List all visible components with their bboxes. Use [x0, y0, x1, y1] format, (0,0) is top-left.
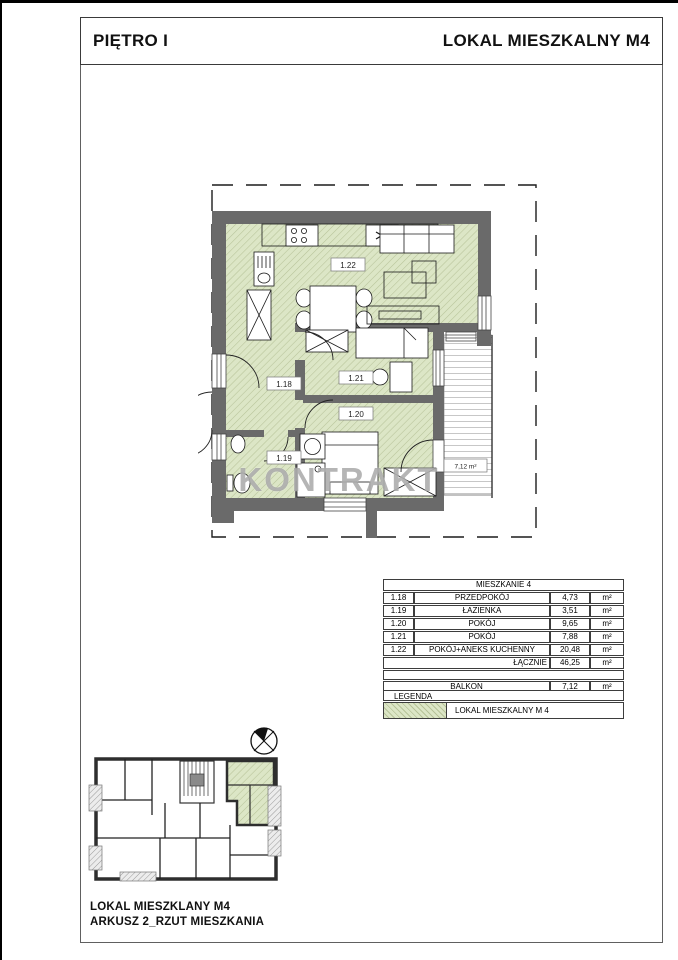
footer-block: LOKAL MIESZKLANY M4 ARKUSZ 2_RZUT MIESZK…	[90, 900, 264, 930]
room-label-121: 1.21	[348, 374, 364, 383]
room-label-122: 1.22	[340, 261, 356, 270]
title-bar: PIĘTRO I LOKAL MIESZKALNY M4	[80, 17, 663, 65]
table-row: 1.19 ŁAZIENKA 3,51 m²	[383, 605, 624, 617]
washbasin-icon	[231, 435, 245, 453]
floor-title: PIĘTRO I	[93, 31, 168, 51]
legend: LEGENDA LOKAL MIESZKALNY M 4	[383, 690, 624, 719]
key-plan	[85, 718, 290, 890]
legend-swatch-hatch	[384, 703, 447, 718]
table-row: 1.20 POKÓJ 9,65 m²	[383, 618, 624, 630]
watermark: KONTRAKT	[234, 458, 444, 502]
table-total-row: ŁĄCZNIE 46,25 m²	[383, 657, 624, 669]
room-label-120: 1.20	[348, 410, 364, 419]
balcony	[444, 335, 492, 498]
bed-121	[356, 328, 428, 358]
table-title: MIESZKANIE 4	[383, 579, 624, 591]
scan-edge-left	[0, 0, 2, 960]
sofa	[380, 225, 454, 253]
footer-line2: ARKUSZ 2_RZUT MIESZKANIA	[90, 915, 264, 930]
table-row: 1.21 POKÓJ 7,88 m²	[383, 631, 624, 643]
balcony-area-label: 7,12 m²	[454, 464, 477, 471]
unit-title: LOKAL MIESZKALNY M4	[443, 31, 650, 51]
washing-machine-icon	[300, 434, 325, 459]
north-arrow-icon	[251, 728, 277, 754]
chair	[372, 369, 388, 385]
footer-line1: LOKAL MIESZKLANY M4	[90, 900, 264, 915]
room-label-118: 1.18	[276, 380, 292, 389]
area-table: MIESZKANIE 4 1.18 PRZEDPOKÓJ 4,73 m² 1.1…	[383, 578, 624, 694]
desk	[390, 362, 412, 392]
legend-row: LOKAL MIESZKALNY M 4	[383, 702, 624, 719]
table-row: 1.18 PRZEDPOKÓJ 4,73 m²	[383, 592, 624, 604]
legend-item-label: LOKAL MIESZKALNY M 4	[447, 703, 623, 718]
table-spacer-row	[383, 670, 624, 680]
dining-table	[310, 286, 356, 332]
fridge-icon	[254, 252, 274, 286]
scan-edge-top	[0, 0, 678, 3]
table-row: 1.22 POKÓJ+ANEKS KUCHENNY 20,48 m²	[383, 644, 624, 656]
stove-icon	[286, 225, 318, 246]
drawing-sheet: PIĘTRO I LOKAL MIESZKALNY M4	[0, 0, 678, 960]
stair-core	[180, 761, 214, 803]
legend-title: LEGENDA	[383, 690, 624, 701]
